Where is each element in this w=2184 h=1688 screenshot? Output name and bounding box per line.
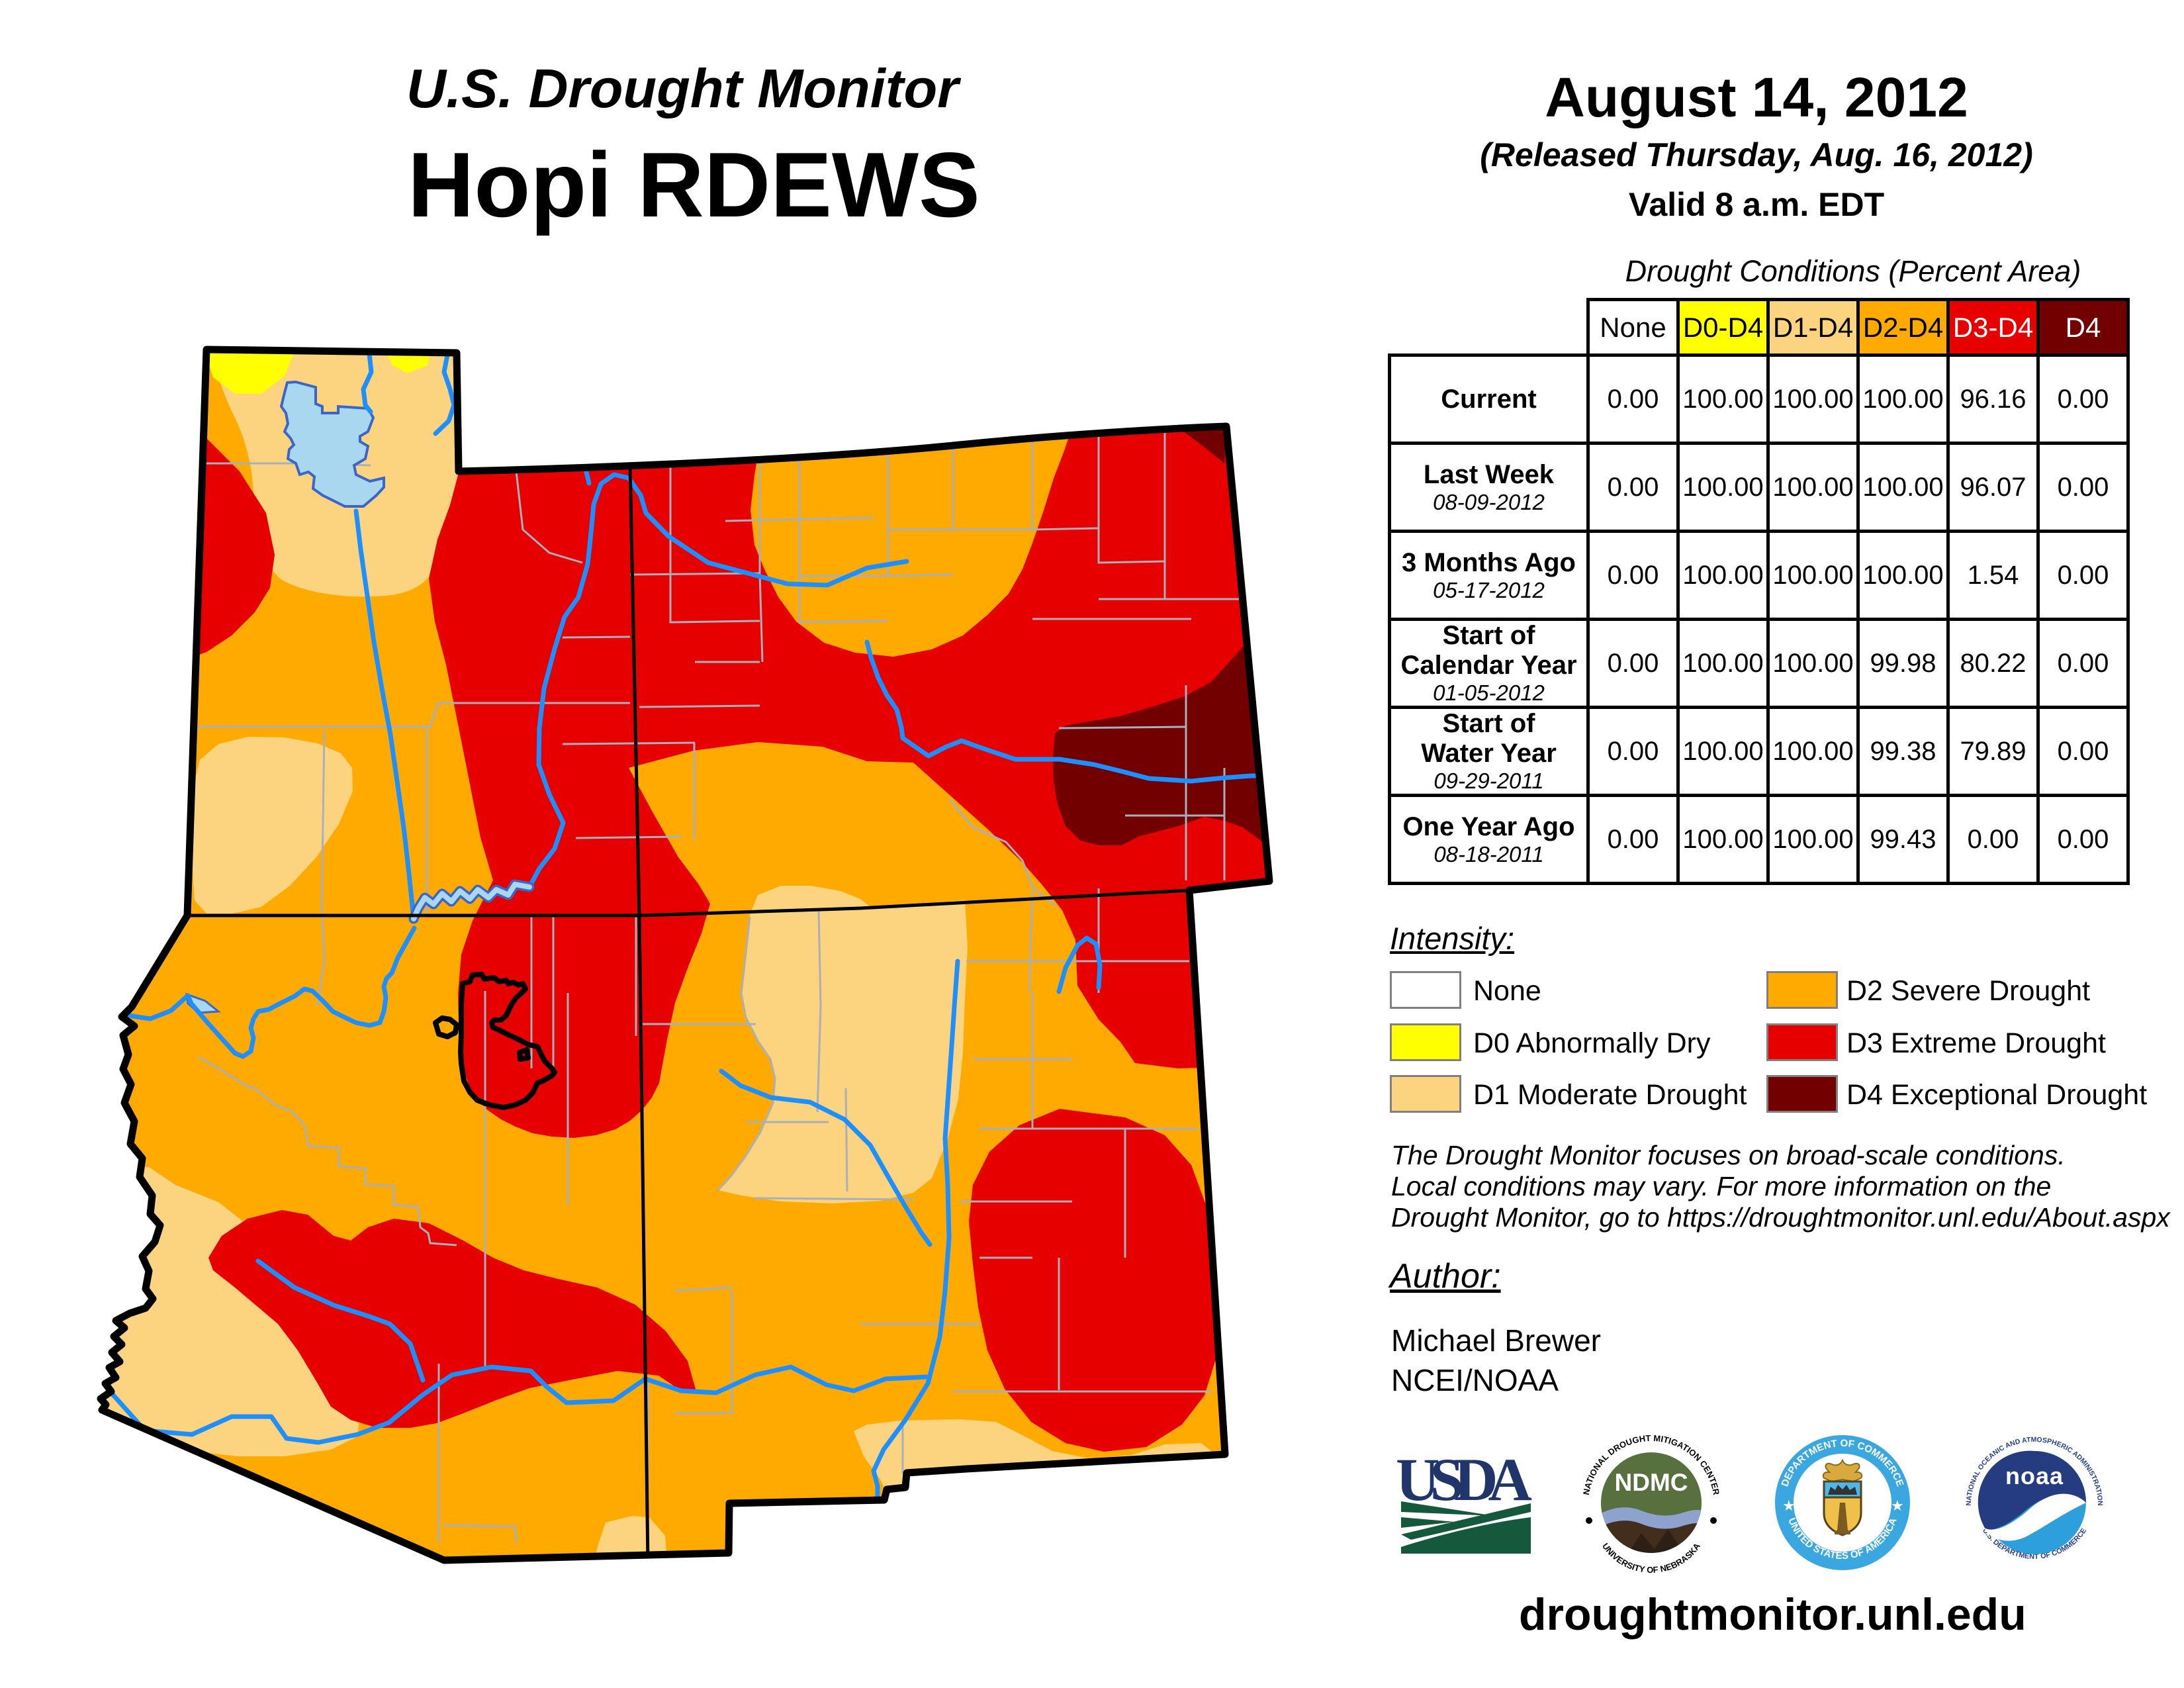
svg-text:NDMC: NDMC <box>1615 1469 1688 1496</box>
svg-text:noaa: noaa <box>2005 1462 2064 1489</box>
svg-text:★: ★ <box>1782 1497 1796 1514</box>
svg-text:★: ★ <box>1891 1497 1904 1514</box>
svg-text:USDA: USDA <box>1396 1446 1532 1513</box>
